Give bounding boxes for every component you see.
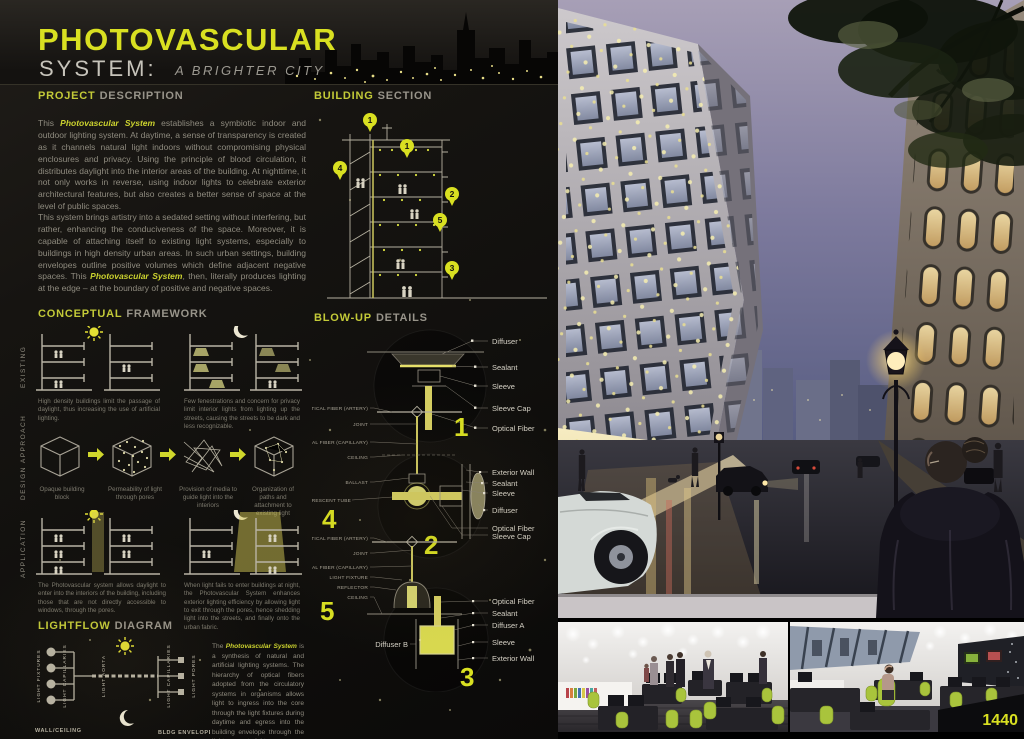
section-heading-building: BUILDINGSECTION bbox=[314, 90, 432, 102]
row-label-design-approach: DESIGN APPROACH bbox=[20, 415, 27, 500]
section-marker: 3 bbox=[450, 263, 455, 273]
heading-em: CONCEPTUAL bbox=[38, 308, 122, 320]
detail-label-sm: JOINT bbox=[353, 551, 368, 557]
detail-label: Sleeve bbox=[492, 489, 515, 498]
detail-2: Exterior Wall Sealant Sleeve Diffuser Op… bbox=[392, 464, 535, 560]
detail-4: OPTICAL FIBER (ARTERY) JOINT OPTICAL FIB… bbox=[312, 406, 462, 534]
detail-label: Exterior Wall bbox=[492, 468, 535, 477]
office-interior-right: 1440 bbox=[790, 622, 1024, 732]
detail-label-sm: LIGHT FIXTURE bbox=[330, 575, 369, 581]
night-street-render bbox=[558, 0, 1024, 618]
section-marker: 1 bbox=[368, 115, 373, 125]
heading-rest: FRAMEWORK bbox=[126, 308, 207, 320]
board-tagline: A BRIGHTER CITY bbox=[175, 63, 325, 78]
detail-label: Sleeve bbox=[492, 382, 515, 391]
detail-label: Optical Fiber bbox=[492, 524, 535, 533]
detail-label: Diffuser bbox=[492, 506, 518, 515]
board-subtitle: SYSTEM: bbox=[39, 58, 157, 80]
detail-label-sm: CEILING bbox=[347, 455, 368, 461]
p2-post: , then, literally produces lighting at t… bbox=[38, 271, 306, 293]
lightflow-paragraph: The Photovascular System is a synthesis … bbox=[212, 642, 304, 739]
lf-pre: The bbox=[212, 643, 226, 650]
design-caption-2: Permeability of light through pores bbox=[106, 486, 164, 502]
project-paragraph-2: This system brings artistry into a sedat… bbox=[38, 212, 306, 295]
dark-feature-wall bbox=[958, 636, 1024, 688]
detail-label-sm: OPTICAL FIBER (ARTERY) bbox=[312, 406, 368, 412]
heading-em: BUILDING bbox=[314, 90, 374, 102]
detail-5: OPTICAL FIBER (ARTERY) JOINT OPTICAL FIB… bbox=[312, 536, 462, 626]
detail-number: 4 bbox=[322, 504, 337, 534]
info-panel: PHOTOVASCULAR SYSTEM: A BRIGHTER CITY PR… bbox=[0, 0, 558, 739]
row-label-application: APPLICATION bbox=[20, 519, 27, 578]
detail-number: 2 bbox=[424, 530, 438, 560]
section-heading-lightflow: LIGHTFLOWDIAGRAM bbox=[38, 620, 173, 632]
p2-pre: This system brings artistry into a sedat… bbox=[38, 212, 306, 281]
detail-label: Exterior Wall bbox=[492, 654, 535, 663]
detail-label: Sealant bbox=[492, 479, 518, 488]
blow-up-details-drawing: Diffuser Sealant Sleeve Sleeve Cap Optic… bbox=[312, 324, 558, 692]
application-diagrams bbox=[34, 510, 302, 578]
heading-rest: DESCRIPTION bbox=[100, 90, 184, 102]
existing-caption-2: Few fenestrations and concern for privac… bbox=[184, 398, 300, 431]
section-marker: 1 bbox=[405, 141, 410, 151]
section-markers: 1 1 4 2 5 3 bbox=[333, 113, 459, 280]
detail-label: Sleeve Cap bbox=[492, 404, 531, 413]
detail-label-sm: OPTICAL FIBER (CAPILLARY) bbox=[312, 565, 368, 571]
detail-label-sm: CEILING bbox=[347, 595, 368, 601]
lightflow-label: LIGHT AORTA bbox=[101, 655, 107, 697]
detail-label: Diffuser bbox=[492, 337, 518, 346]
detail-label-sm: OPTICAL FIBER (ARTERY) bbox=[312, 536, 368, 542]
design-caption-3: Provision of media to guide light into t… bbox=[178, 486, 238, 510]
detail-label-sm: BALLAST bbox=[346, 480, 368, 486]
row-label-existing: EXISTING bbox=[20, 346, 27, 388]
heading-rest: DIAGRAM bbox=[115, 620, 173, 632]
competition-board: PHOTOVASCULAR SYSTEM: A BRIGHTER CITY PR… bbox=[0, 0, 1024, 739]
application-caption-2: When light fails to enter buildings at n… bbox=[184, 582, 300, 632]
section-heading-project: PROJECTDESCRIPTION bbox=[38, 90, 184, 102]
project-paragraph-1: This Photovascular System establishes a … bbox=[38, 118, 306, 213]
panel-header: PHOTOVASCULAR SYSTEM: A BRIGHTER CITY bbox=[0, 0, 558, 84]
building-section-drawing: 1 1 4 2 5 3 bbox=[312, 102, 558, 308]
lightflow-label: LIGHT FIXTURES bbox=[36, 649, 42, 702]
p1-em: Photovascular System bbox=[60, 118, 155, 128]
detail-label: Sleeve Cap bbox=[492, 532, 531, 541]
p2-em: Photovascular System bbox=[90, 271, 182, 281]
lightflow-label: LIGHT CAPILLARIES bbox=[62, 644, 68, 707]
lightflow-label: LIGHT PORES bbox=[191, 654, 197, 697]
heading-rest: DETAILS bbox=[376, 312, 428, 324]
lightflow-diagram: LIGHT FIXTURES LIGHT CAPILLARIES LIGHT A… bbox=[30, 634, 210, 736]
detail-number: 3 bbox=[460, 662, 474, 692]
section-heading-conceptual: CONCEPTUALFRAMEWORK bbox=[38, 308, 208, 320]
board-title: PHOTOVASCULAR bbox=[38, 24, 337, 55]
detail-1: Diffuser Sealant Sleeve Sleeve Cap Optic… bbox=[367, 337, 535, 442]
detail-label: Sealant bbox=[492, 363, 518, 372]
application-caption-1: The Photovascular system allows daylight… bbox=[38, 582, 166, 615]
heading-em: LIGHTFLOW bbox=[38, 620, 111, 632]
section-marker: 4 bbox=[338, 163, 343, 173]
existing-diagrams bbox=[34, 326, 302, 394]
detail-3: Optical Fiber Sealant Diffuser A Sleeve … bbox=[375, 596, 535, 692]
design-approach-diagrams bbox=[34, 432, 302, 482]
panel-light-dots bbox=[0, 0, 558, 739]
lf-em: Photovascular System bbox=[226, 643, 297, 650]
entry-number: 1440 bbox=[982, 712, 1018, 729]
detail-label-sm: FLUORESCENT TUBE bbox=[312, 498, 351, 504]
city-skyline-graphic bbox=[285, 0, 558, 84]
lightflow-label: LIGHT CAPILLARIES bbox=[166, 644, 172, 707]
detail-label: Optical Fiber bbox=[492, 597, 535, 606]
detail-label: Optical Fiber bbox=[492, 424, 535, 433]
design-caption-1: Opaque building block bbox=[34, 486, 90, 502]
design-caption-4: Organization of paths and attachment to … bbox=[244, 486, 302, 518]
detail-label-diffuser-b: Diffuser B bbox=[375, 640, 408, 649]
p1-pre: This bbox=[38, 118, 60, 128]
heading-em: PROJECT bbox=[38, 90, 96, 102]
detail-number: 5 bbox=[320, 596, 334, 626]
detail-label: Diffuser A bbox=[492, 621, 524, 630]
lightflow-bottom-label-wall: WALL/CEILING bbox=[35, 728, 82, 734]
detail-label-sm: REFLECTOR bbox=[337, 585, 368, 591]
detail-label: Sealant bbox=[492, 609, 518, 618]
detail-number: 1 bbox=[454, 412, 468, 442]
header-divider bbox=[0, 84, 558, 85]
lightflow-bottom-label-envelope: BLDG ENVELOPE bbox=[158, 730, 210, 736]
section-marker: 5 bbox=[438, 215, 443, 225]
heading-rest: SECTION bbox=[378, 90, 433, 102]
detail-label: Sleeve bbox=[492, 638, 515, 647]
lf-post: is a synthesis of natural and artificial… bbox=[212, 643, 304, 739]
heading-em: BLOW-UP bbox=[314, 312, 372, 324]
section-heading-details: BLOW-UPDETAILS bbox=[314, 312, 428, 324]
p1-post: establishes a symbiotic indoor and outdo… bbox=[38, 118, 306, 211]
detail-label-sm: OPTICAL FIBER (CAPILLARY) bbox=[312, 440, 368, 446]
office-interior-left bbox=[558, 622, 788, 732]
detail-label-sm: JOINT bbox=[353, 422, 368, 428]
existing-caption-1: High density buildings limit the passage… bbox=[38, 398, 160, 423]
section-marker: 2 bbox=[450, 189, 455, 199]
